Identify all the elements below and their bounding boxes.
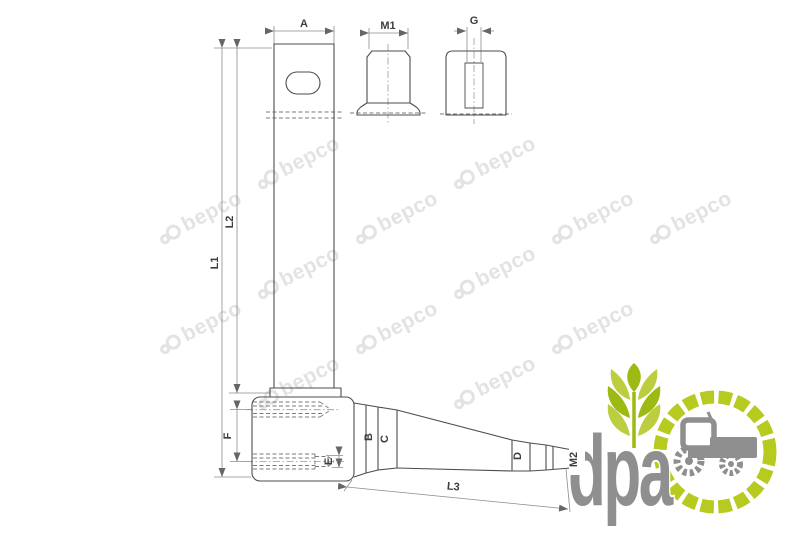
- shaft-slot: [286, 72, 320, 94]
- hidden-lines: [253, 112, 512, 469]
- dim-label-a: A: [300, 18, 308, 30]
- dim-label-f: F: [222, 432, 234, 439]
- slot-view: [446, 51, 506, 115]
- dim-label-c: C: [379, 435, 391, 443]
- dim-label-m1: M1: [380, 20, 395, 32]
- dimension-lines: [214, 26, 570, 512]
- dim-label-d: D: [512, 452, 524, 460]
- part-outline: [252, 44, 583, 481]
- dim-label-l2: L2: [224, 216, 236, 229]
- dim-label-l3: L3: [446, 480, 460, 493]
- spindle-shaft: [274, 44, 334, 388]
- arm-taper: [397, 410, 512, 471]
- dim-label-m2: M2: [568, 452, 580, 467]
- stud-view: [367, 51, 410, 103]
- dim-label-b: B: [363, 433, 375, 441]
- shaft-collar: [270, 388, 341, 397]
- arm-neck: [530, 443, 546, 471]
- dim-label-l1: L1: [209, 257, 221, 270]
- center-lines: [246, 38, 474, 462]
- dim-label-e: E: [323, 458, 335, 465]
- screenshot-canvas: bepcobepcobepcobepcobepcobepcobepcobepco…: [0, 0, 800, 534]
- dim-label-g: G: [470, 15, 479, 27]
- technical-drawing: A M1 G L1 L2 F E B C D M2 L3: [0, 0, 800, 534]
